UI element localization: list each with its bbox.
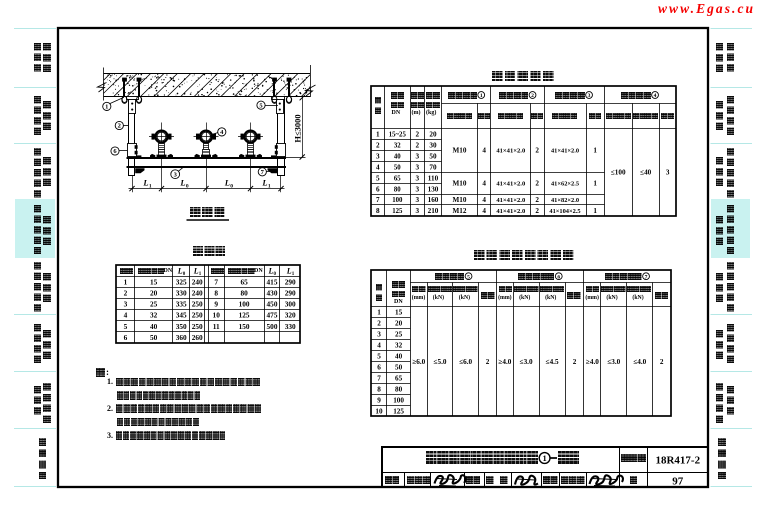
svg-text:4: 4: [654, 93, 657, 99]
svg-text:7: 7: [645, 274, 648, 280]
svg-text:6: 6: [557, 274, 560, 280]
svg-text:3: 3: [588, 93, 591, 99]
svg-text:1: 1: [480, 93, 483, 99]
svg-text:2: 2: [531, 93, 534, 99]
svg-text:5: 5: [467, 274, 470, 280]
